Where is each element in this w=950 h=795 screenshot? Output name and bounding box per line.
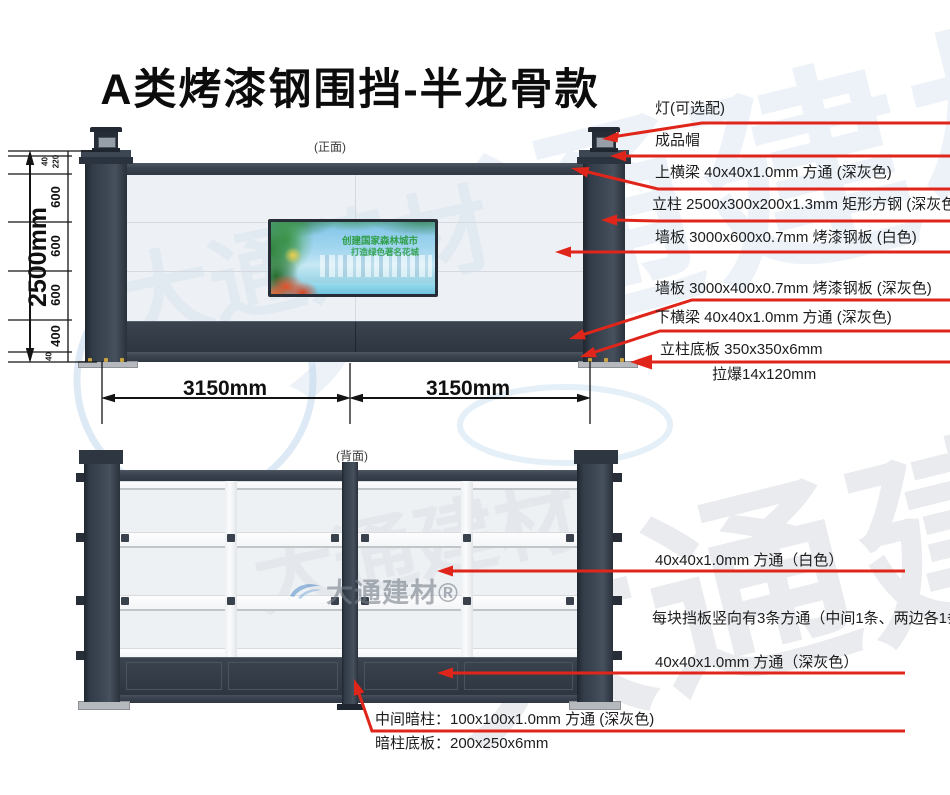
right-post-cap-base <box>577 157 631 164</box>
billboard-yellow-flowers <box>281 244 306 267</box>
label-bottom-beam: 下横梁 40x40x1.0mm 方通 (深灰色) <box>655 309 892 326</box>
connector-clip <box>121 534 129 542</box>
anchor-bolt <box>88 358 92 362</box>
billboard-flowers <box>271 263 340 297</box>
dim-seg-600a: 600 <box>48 172 64 222</box>
dim-seg-40-bottom: 40 <box>45 345 56 369</box>
brand-swoosh-icon <box>288 580 322 602</box>
brand-logo-text: 大通建材® <box>326 571 459 610</box>
band-center-seam <box>355 322 356 352</box>
band-frame <box>126 662 222 690</box>
anchor-bolt <box>120 358 124 362</box>
center-hidden-post-base <box>337 704 363 710</box>
front-right-post <box>583 155 625 362</box>
label-cap: 成品帽 <box>655 132 700 149</box>
connector-clip <box>566 534 574 542</box>
connector-clip <box>227 597 235 605</box>
connector-clip <box>566 597 574 605</box>
anchor-bolt <box>588 358 592 362</box>
label-post: 立柱 2500x300x200x1.3mm 矩形方钢 (深灰色) <box>652 196 950 213</box>
anchor-bolt <box>104 358 108 362</box>
anchor-bolt <box>604 358 608 362</box>
billboard-slogan-line2: 打造绿色著名花城 <box>338 246 431 258</box>
post-tab <box>613 473 622 482</box>
back-left-base-plate <box>78 701 130 710</box>
anchor-bolt <box>620 358 624 362</box>
connector-clip <box>121 597 129 605</box>
connector-clip <box>227 534 235 542</box>
label-tube-note: 每块挡板竖向有3条方通（中间1条、两边各1条） <box>652 610 950 627</box>
dim-panel-width-1: 3150mm <box>155 377 295 401</box>
brand-logo: 大通建材® <box>288 571 459 610</box>
left-lamp-base <box>92 148 120 152</box>
band-frame <box>228 662 338 690</box>
dim-panel-width-2: 3150mm <box>398 377 538 401</box>
right-lamp-glass <box>596 137 614 148</box>
back-right-base-plate <box>569 701 621 710</box>
dim-seg-600b: 600 <box>48 221 64 271</box>
connector-clip <box>331 534 339 542</box>
billboard-slogan-line1: 创建国家森林城市 <box>328 233 431 247</box>
billboard-image: 创建国家森林城市 打造绿色著名花城 <box>268 219 438 297</box>
back-vertical-tube <box>461 481 473 657</box>
back-right-post-top-bracket <box>574 450 618 464</box>
left-post-base-plate <box>78 361 138 368</box>
front-gray-wall-panel <box>127 321 583 352</box>
band-frame <box>364 662 458 690</box>
back-vertical-tube <box>225 481 237 657</box>
back-right-post <box>577 462 613 702</box>
band-frame <box>464 662 573 690</box>
back-left-post-top-bracket <box>79 450 123 464</box>
label-tube-white: 40x40x1.0mm 方通（白色） <box>655 552 843 569</box>
label-lamp: 灯(可选配) <box>655 100 725 117</box>
connector-clip <box>463 534 471 542</box>
front-top-beam <box>127 163 583 175</box>
left-post-cap-base <box>79 157 133 164</box>
connector-clip <box>361 534 369 542</box>
dim-seg-220: 220 <box>52 150 63 174</box>
connector-clip <box>463 597 471 605</box>
right-post-base-plate <box>578 361 638 368</box>
right-lamp-base <box>590 148 618 152</box>
label-anchor: 拉爆14x120mm <box>712 366 816 383</box>
label-tube-gray: 40x40x1.0mm 方通（深灰色） <box>655 654 858 671</box>
page-title: A类烤漆钢围挡-半龙骨款 <box>100 55 600 117</box>
post-tab <box>613 533 622 542</box>
label-wall-white: 墙板 3000x600x0.7mm 烤漆钢板 (白色) <box>655 229 917 246</box>
label-wall-gray: 墙板 3000x400x0.7mm 烤漆钢板 (深灰色) <box>655 280 932 297</box>
label-hidden-post-base: 暗柱底板：200x250x6mm <box>375 735 548 752</box>
back-left-post <box>84 462 120 702</box>
label-base-plate: 立柱底板 350x350x6mm <box>660 341 823 358</box>
dim-seg-40-top: 40 <box>41 150 52 174</box>
label-top-beam: 上横梁 40x40x1.0mm 方通 (深灰色) <box>655 164 892 181</box>
post-tab <box>613 651 622 660</box>
front-view-caption: (正面) <box>275 138 385 155</box>
page-canvas: 大通建材 大通建材 A类烤漆钢围挡-半龙骨款 (正面) 大通建材 创建国家森林城… <box>0 0 950 795</box>
front-left-post <box>85 155 127 362</box>
front-bottom-beam <box>96 352 610 362</box>
label-hidden-post: 中间暗柱：100x100x1.0mm 方通 (深灰色) <box>375 711 654 728</box>
post-tab <box>613 596 622 605</box>
left-lamp-glass <box>98 137 116 148</box>
back-view-caption: (背面) <box>297 447 407 464</box>
